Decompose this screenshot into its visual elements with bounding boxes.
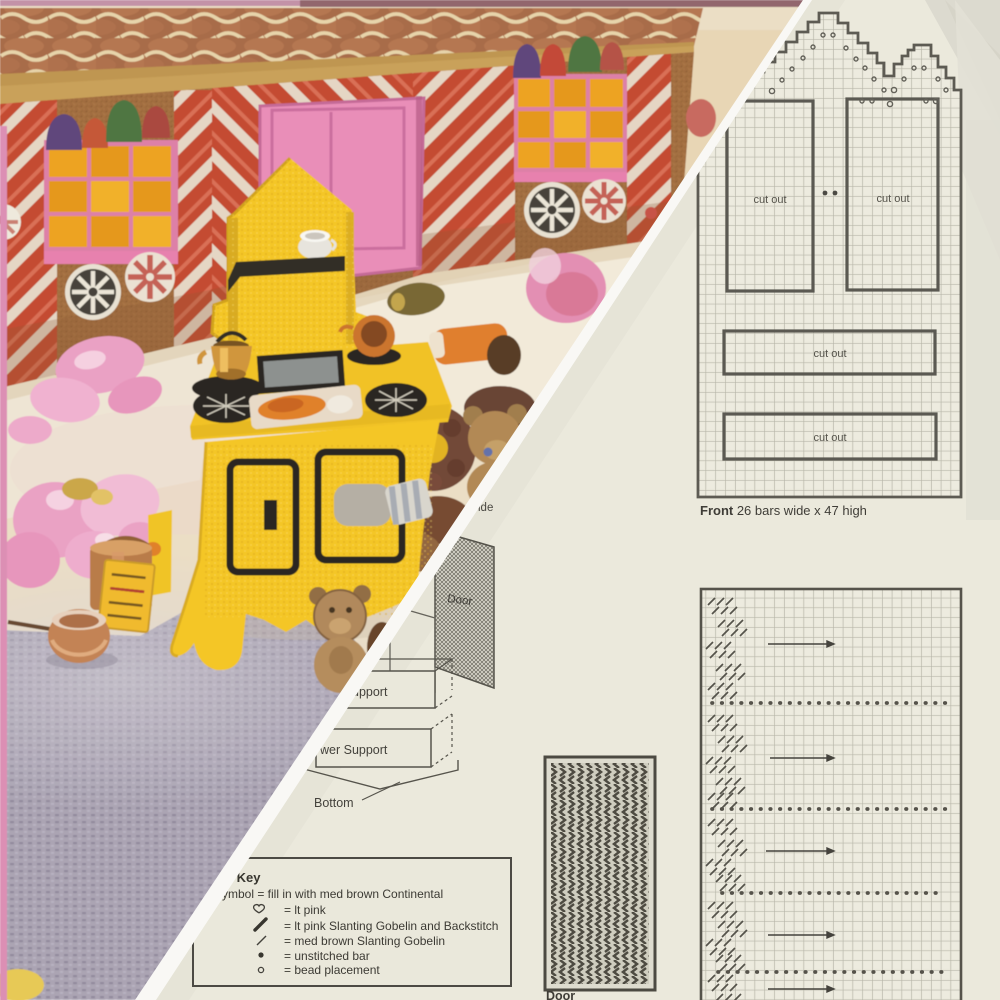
svg-text:= lt pink: = lt pink xyxy=(284,903,327,917)
svg-text:= med brown Slanting Gobelin: = med brown Slanting Gobelin xyxy=(284,934,445,948)
svg-text:Door: Door xyxy=(546,989,575,1000)
svg-text:Bottom: Bottom xyxy=(314,796,354,810)
svg-text:cut out: cut out xyxy=(753,194,786,206)
svg-text:= unstitched bar: = unstitched bar xyxy=(284,949,370,963)
svg-text:wer Support: wer Support xyxy=(319,743,388,757)
svg-text:ymbol = fill in with med brown: ymbol = fill in with med brown Continent… xyxy=(222,887,443,901)
svg-text:cut out: cut out xyxy=(813,348,846,360)
svg-text:= lt pink Slanting Gobelin and: = lt pink Slanting Gobelin and Backstitc… xyxy=(284,919,498,933)
svg-text:Front 26 bars wide x 47 high: Front 26 bars wide x 47 high xyxy=(700,503,867,518)
svg-text:cut out: cut out xyxy=(876,193,909,205)
svg-text:= bead placement: = bead placement xyxy=(284,963,380,977)
svg-text:cut out: cut out xyxy=(813,432,846,444)
